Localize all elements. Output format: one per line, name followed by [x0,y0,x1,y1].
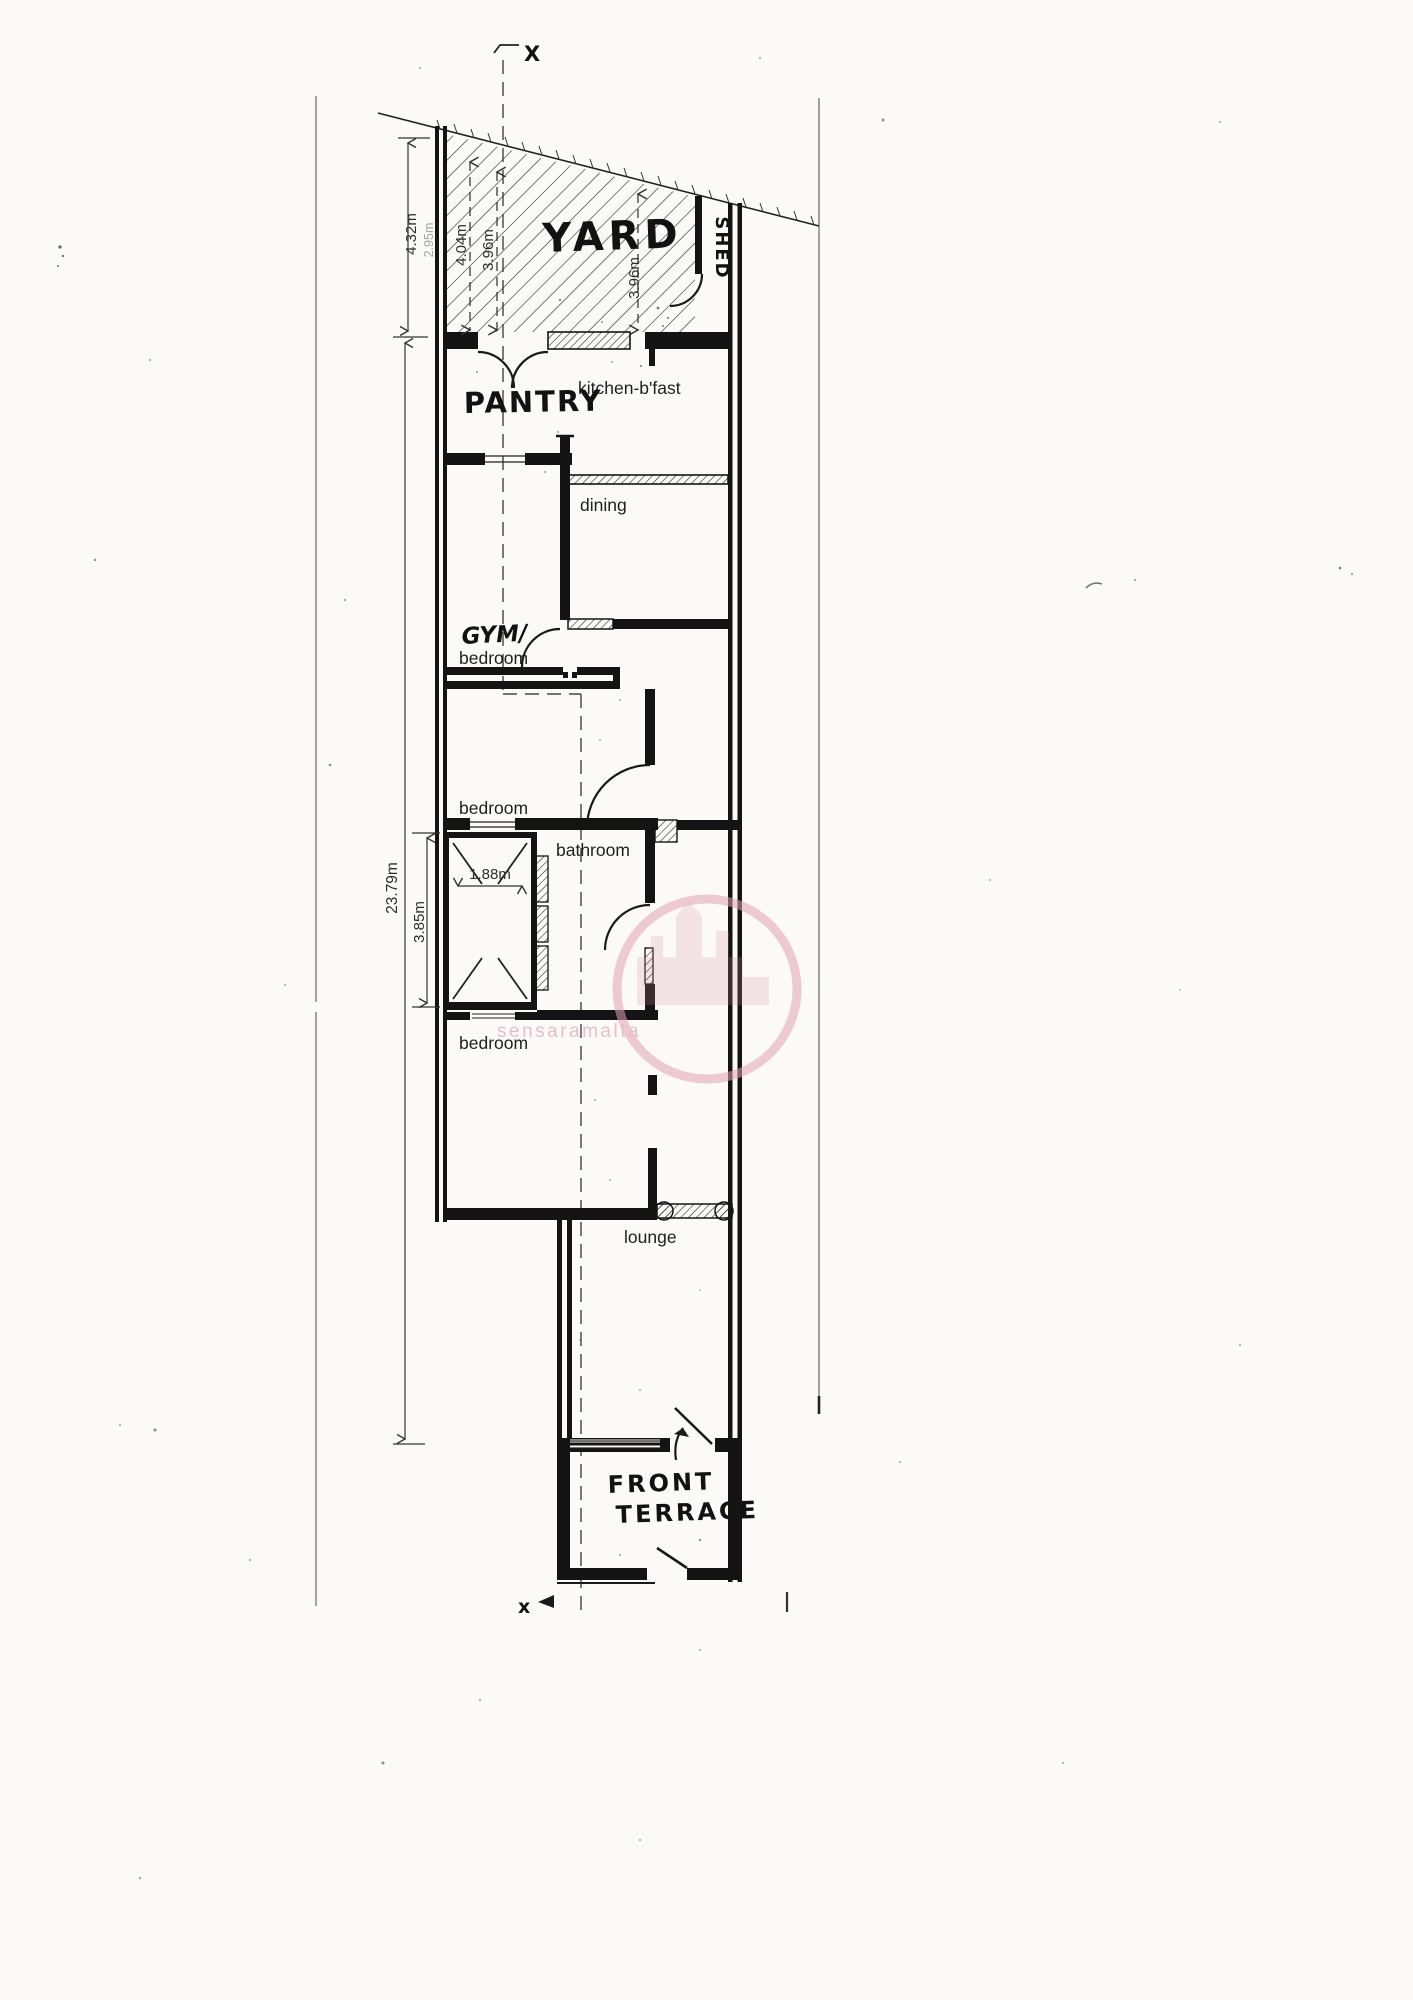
yard-label: YARD [541,211,684,262]
yard-door-arc-left [478,352,514,388]
terrace-label: TERRACE [615,1496,759,1529]
section-top-bracket [494,45,519,53]
shed-label: SHED [711,216,732,279]
lounge-label: lounge [624,1227,677,1247]
front-bedroom: bedroom [443,1012,658,1220]
gate-leaf [657,1548,687,1568]
dim-yard-depth-mid2: 3.96m [480,229,497,271]
bedroom-mid-label: bedroom [459,798,528,818]
dim-yard-depth-left: 4.32m [403,213,420,255]
pantry-opening [485,456,525,462]
entrance-door-leaf [675,1408,712,1444]
dim-shaft-height: 3.85m [411,901,428,943]
dining-label: dining [580,495,627,515]
dim-house-length: 23.79m [384,862,401,914]
yard-door-arc-right [512,352,548,388]
front-label: FRONT [607,1467,715,1499]
gym-sub-label: bedroom [459,648,528,668]
section-marker-bottom: x [518,1596,530,1618]
dining: dining [522,483,728,667]
watermark-text: sensaramalta [497,1021,641,1042]
bedroom-mid-window [470,822,515,827]
scan-smudge [1086,583,1102,588]
gym-label: GYM/ [461,620,530,649]
dim-yard-depth-left-faint: 2.95m [422,223,436,258]
middle-bedroom: bedroom [443,689,742,842]
gym-bedroom: GYM/ bedroom [447,620,620,689]
dining-window [568,619,613,629]
section-bottom-flag [538,1595,554,1608]
kitchen-dining-window [568,475,728,484]
floor-plan-canvas: X x YARD SHED kitchen-b'fast [0,0,1413,2000]
dim-yard-depth-right: 3.96m [626,257,643,299]
lounge: lounge [550,1202,742,1460]
bedroom-front-window [472,1014,515,1018]
scanned-floorplan-page: X x YARD SHED kitchen-b'fast [0,0,1413,2000]
pantry-label: PANTRY [464,384,603,420]
dim-yard-depth-mid: 4.04m [453,224,470,266]
dim-shaft-width: 1.88m [469,866,511,883]
bathroom-label: bathroom [556,840,630,860]
section-marker-top: X [524,42,540,66]
pantry: PANTRY [447,384,603,465]
shaft [443,832,548,1010]
front-terrace: FRONT TERRACE [557,1452,759,1583]
